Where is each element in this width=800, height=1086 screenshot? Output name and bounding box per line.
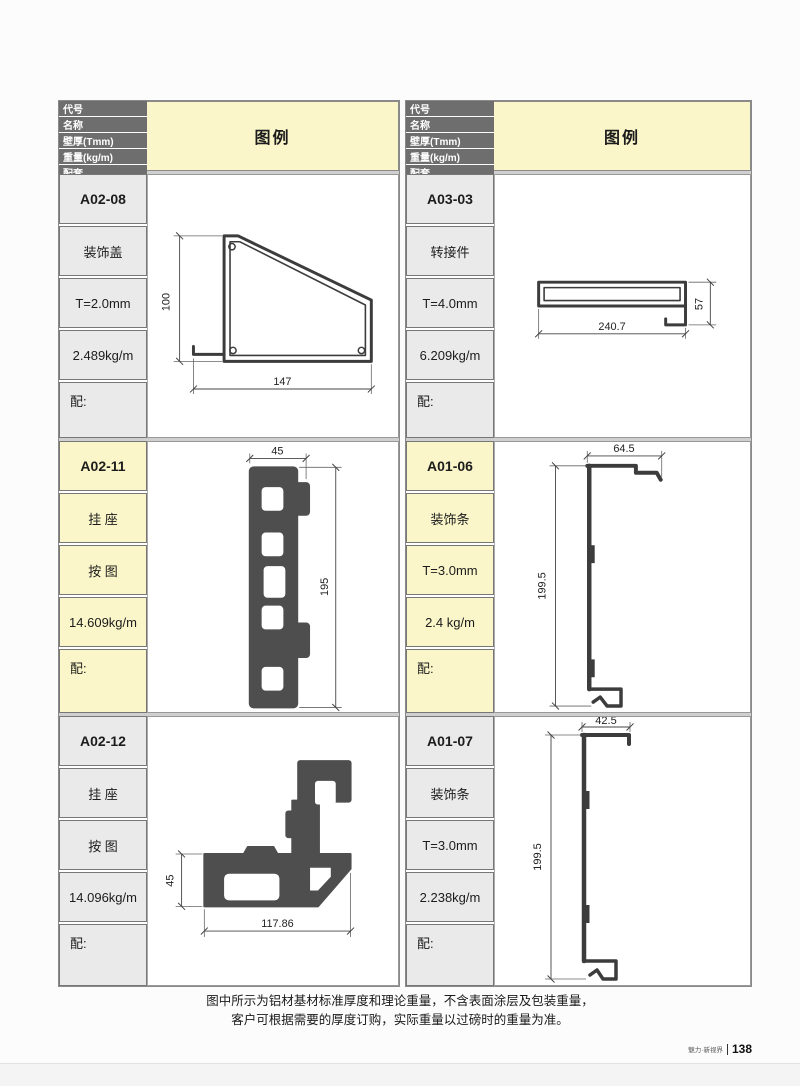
drawing-a03-03: 57 240.7 [494,174,751,438]
weight-cell: 6.209kg/m [406,330,494,380]
profile-drawing: 45 117.86 [148,717,398,985]
dim-width-label: 240.7 [598,321,625,333]
profile-row-a02-08: A02-08 装饰盖 T=2.0mm 2.489kg/m 配: 100 [59,174,399,438]
dim-width-label: 147 [273,376,291,388]
legend-cell: 图例 [494,101,751,171]
name-cell: 挂 座 [59,768,147,818]
header-label-name: 名称 [406,117,494,133]
brand-text: 魅力·新视界 [688,1044,723,1054]
weight-cell: 2.238kg/m [406,872,494,922]
profile-table-right: 代号 名称 壁厚(Tmm) 重量(kg/m) 配套 图例 A03-03 转接件 … [405,100,752,987]
name-cell: 装饰盖 [59,226,147,276]
profile-row-a02-11: A02-11 挂 座 按 图 14.609kg/m 配: [59,441,399,713]
drawing-a02-12: 45 117.86 [147,716,399,986]
dim-width-label: 42.5 [595,717,616,727]
thickness-cell: 按 图 [59,545,147,595]
header-label-code: 代号 [406,101,494,117]
weight-cell: 2.4 kg/m [406,597,494,647]
weight-cell: 14.609kg/m [59,597,147,647]
dim-width-label: 117.86 [261,918,293,930]
catalog-tables: 代号 名称 壁厚(Tmm) 重量(kg/m) 配套 图例 A02-08 装饰盖 … [58,100,752,987]
match-cell: 配: [59,649,147,713]
thickness-cell: T=3.0mm [406,545,494,595]
match-cell: 配: [59,382,147,438]
page-number: 138 [732,1042,752,1056]
footer-note-line1: 图中所示为铝材基材标准厚度和理论重量，不含表面涂层及包装重量， [0,992,800,1011]
header-label-column: 代号 名称 壁厚(Tmm) 重量(kg/m) 配套 [406,101,494,171]
header-label-thickness: 壁厚(Tmm) [406,133,494,149]
thickness-cell: T=4.0mm [406,278,494,328]
code-cell: A03-03 [406,174,494,224]
profile-row-a02-12: A02-12 挂 座 按 图 14.096kg/m 配: [59,716,399,986]
header-label-code: 代号 [59,101,147,117]
weight-cell: 2.489kg/m [59,330,147,380]
profile-row-a01-07: A01-07 装饰条 T=3.0mm 2.238kg/m 配: 42.5 [406,716,751,986]
drawing-a01-06: 64.5 199.5 [494,441,751,713]
match-cell: 配: [59,924,147,986]
footer-note-line2: 客户可根据需要的厚度订购，实际重量以过磅时的重量为准。 [0,1011,800,1030]
name-cell: 装饰条 [406,768,494,818]
header-label-weight: 重量(kg/m) [59,149,147,165]
page-footer: 魅力·新视界 138 [688,1042,752,1056]
code-cell: A02-11 [59,441,147,491]
header-label-column: 代号 名称 壁厚(Tmm) 重量(kg/m) 配套 [59,101,147,171]
match-cell: 配: [406,649,494,713]
label-column: A01-06 装饰条 T=3.0mm 2.4 kg/m 配: [406,441,494,713]
label-column: A02-08 装饰盖 T=2.0mm 2.489kg/m 配: [59,174,147,438]
dim-height-label: 199.5 [532,843,544,871]
name-cell: 转接件 [406,226,494,276]
code-cell: A02-12 [59,716,147,766]
drawing-a01-07: 42.5 199.5 [494,716,751,986]
header-label-thickness: 壁厚(Tmm) [59,133,147,149]
legend-cell: 图例 [147,101,399,171]
profile-row-a03-03: A03-03 转接件 T=4.0mm 6.209kg/m 配: 57 240.7 [406,174,751,438]
code-cell: A01-07 [406,716,494,766]
dim-height-label: 199.5 [537,572,549,599]
profile-row-a01-06: A01-06 装饰条 T=3.0mm 2.4 kg/m 配: 64.5 [406,441,751,713]
page-bottom-edge [0,1063,800,1086]
table-header: 代号 名称 壁厚(Tmm) 重量(kg/m) 配套 图例 [406,101,751,171]
profile-drawing: 57 240.7 [495,175,750,437]
profile-drawing: 42.5 199.5 [495,717,750,985]
dim-height-label: 195 [319,578,331,596]
thickness-cell: T=3.0mm [406,820,494,870]
code-cell: A01-06 [406,441,494,491]
thickness-cell: T=2.0mm [59,278,147,328]
footer-note: 图中所示为铝材基材标准厚度和理论重量，不含表面涂层及包装重量， 客户可根据需要的… [0,992,800,1031]
match-cell: 配: [406,924,494,986]
header-label-name: 名称 [59,117,147,133]
label-column: A01-07 装饰条 T=3.0mm 2.238kg/m 配: [406,716,494,986]
dim-height-label: 57 [693,298,705,310]
profile-table-left: 代号 名称 壁厚(Tmm) 重量(kg/m) 配套 图例 A02-08 装饰盖 … [58,100,400,987]
header-label-weight: 重量(kg/m) [406,149,494,165]
drawing-a02-11: 45 195 [147,441,399,713]
dim-height-label: 100 [161,293,173,311]
drawing-a02-08: 100 147 [147,174,399,438]
dim-width-label: 64.5 [613,443,634,455]
profile-drawing: 45 195 [148,442,398,712]
weight-cell: 14.096kg/m [59,872,147,922]
match-cell: 配: [406,382,494,438]
dim-width-label: 45 [271,445,283,457]
thickness-cell: 按 图 [59,820,147,870]
label-column: A02-11 挂 座 按 图 14.609kg/m 配: [59,441,147,713]
dim-height-label: 45 [165,875,177,887]
table-header: 代号 名称 壁厚(Tmm) 重量(kg/m) 配套 图例 [59,101,399,171]
profile-drawing: 64.5 199.5 [495,442,750,712]
name-cell: 挂 座 [59,493,147,543]
code-cell: A02-08 [59,174,147,224]
profile-drawing: 100 147 [148,175,398,437]
name-cell: 装饰条 [406,493,494,543]
label-column: A03-03 转接件 T=4.0mm 6.209kg/m 配: [406,174,494,438]
label-column: A02-12 挂 座 按 图 14.096kg/m 配: [59,716,147,986]
footer-divider [727,1044,728,1055]
